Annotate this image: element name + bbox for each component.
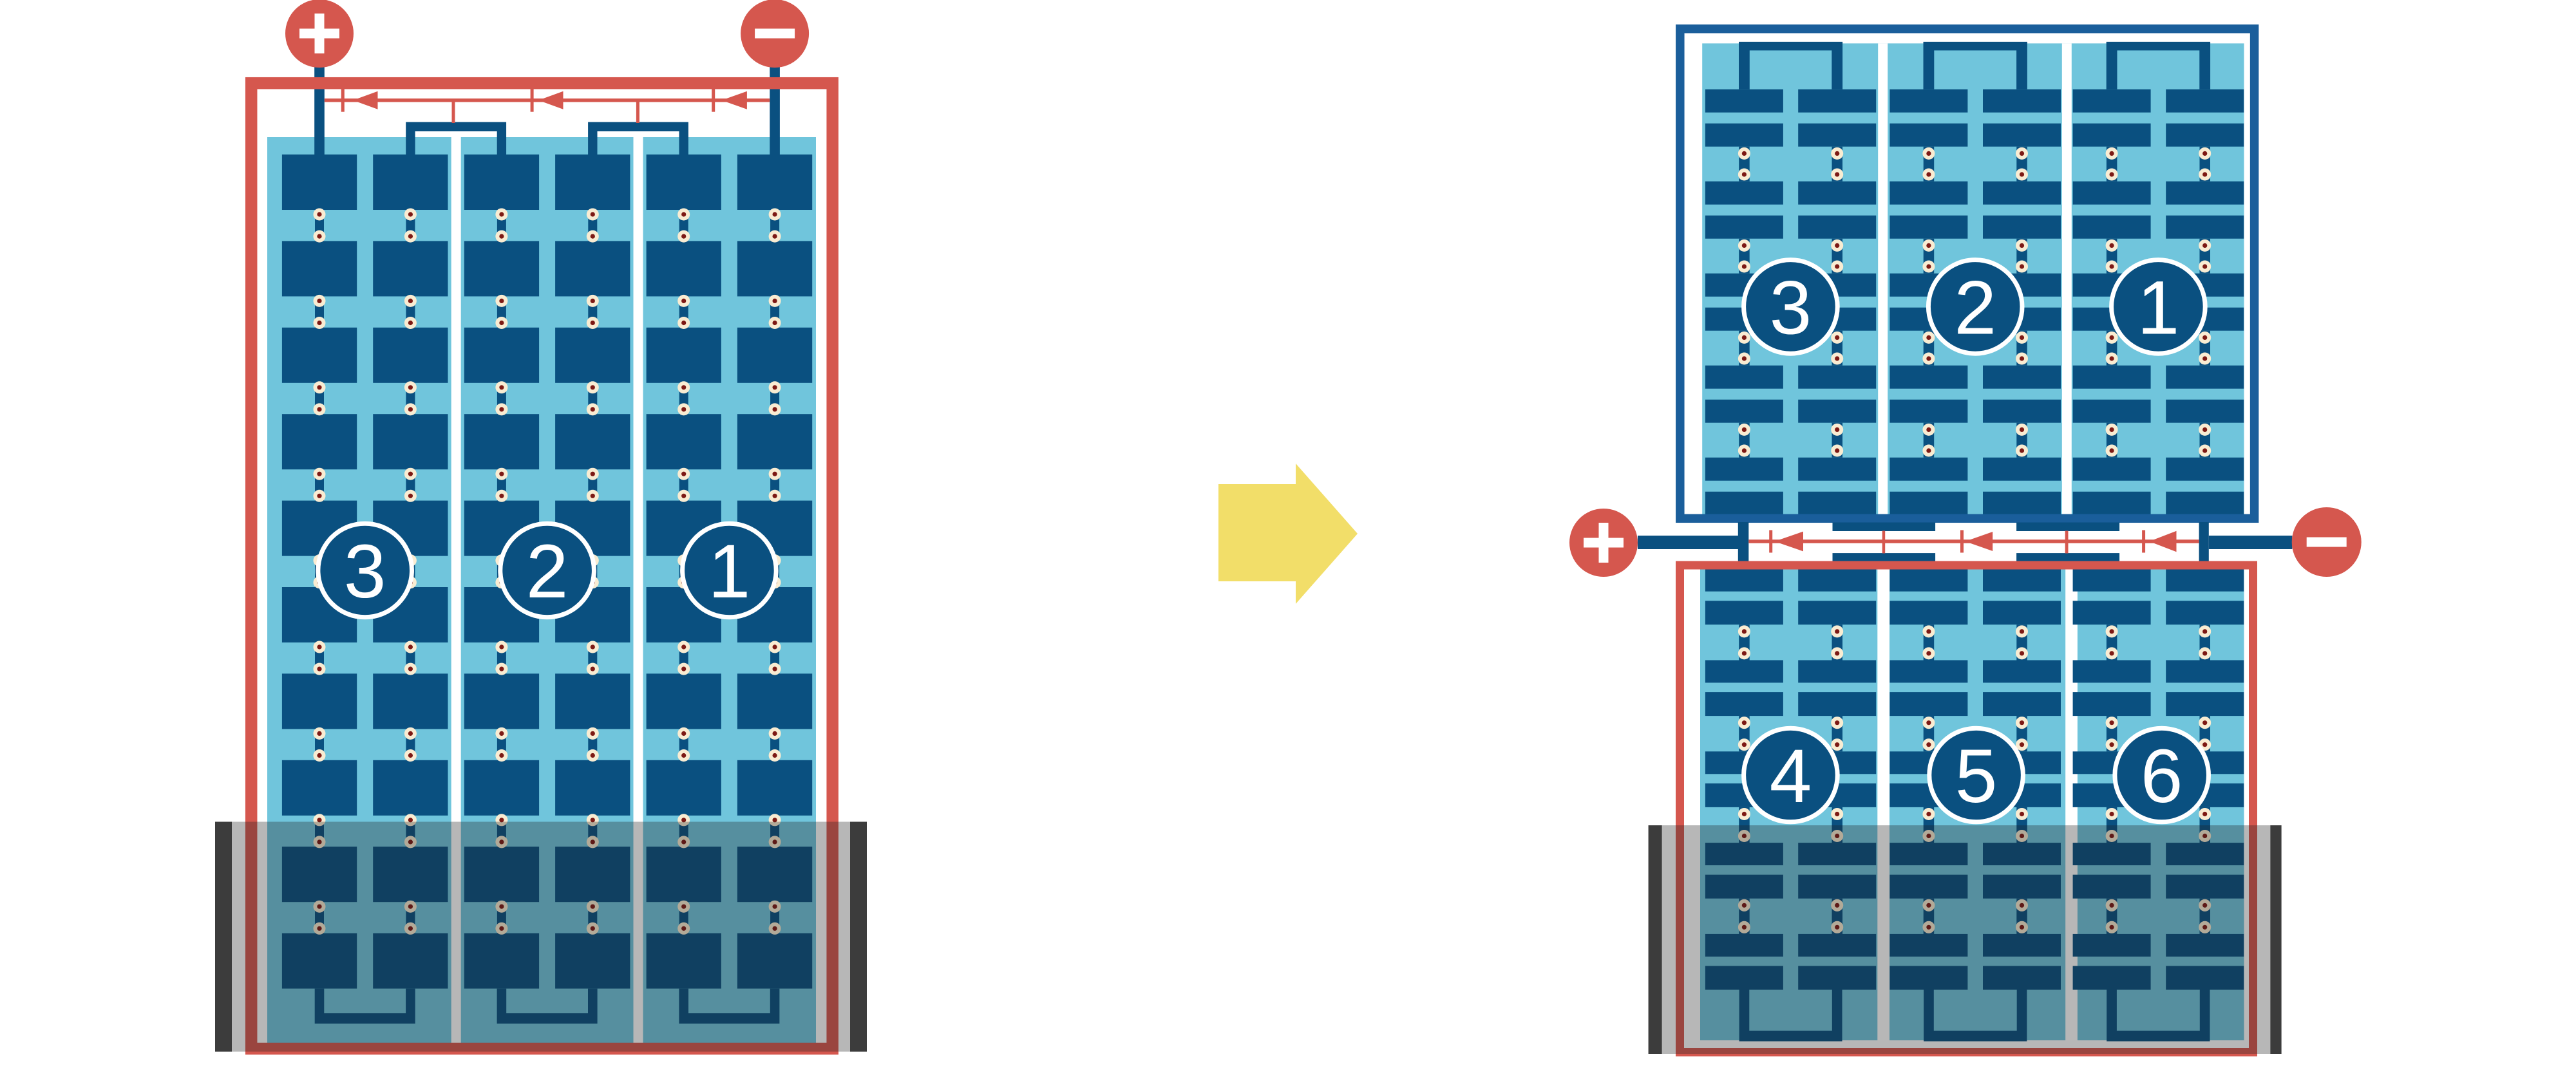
svg-text:4: 4 [1770, 734, 1812, 819]
svg-text:1: 1 [2137, 265, 2180, 350]
svg-text:2: 2 [526, 529, 569, 614]
svg-text:2: 2 [1954, 265, 1996, 350]
svg-text:3: 3 [1770, 265, 1812, 350]
svg-text:5: 5 [1955, 734, 1998, 819]
svg-text:3: 3 [344, 529, 386, 614]
svg-text:1: 1 [708, 529, 751, 614]
svg-text:6: 6 [2141, 734, 2183, 819]
